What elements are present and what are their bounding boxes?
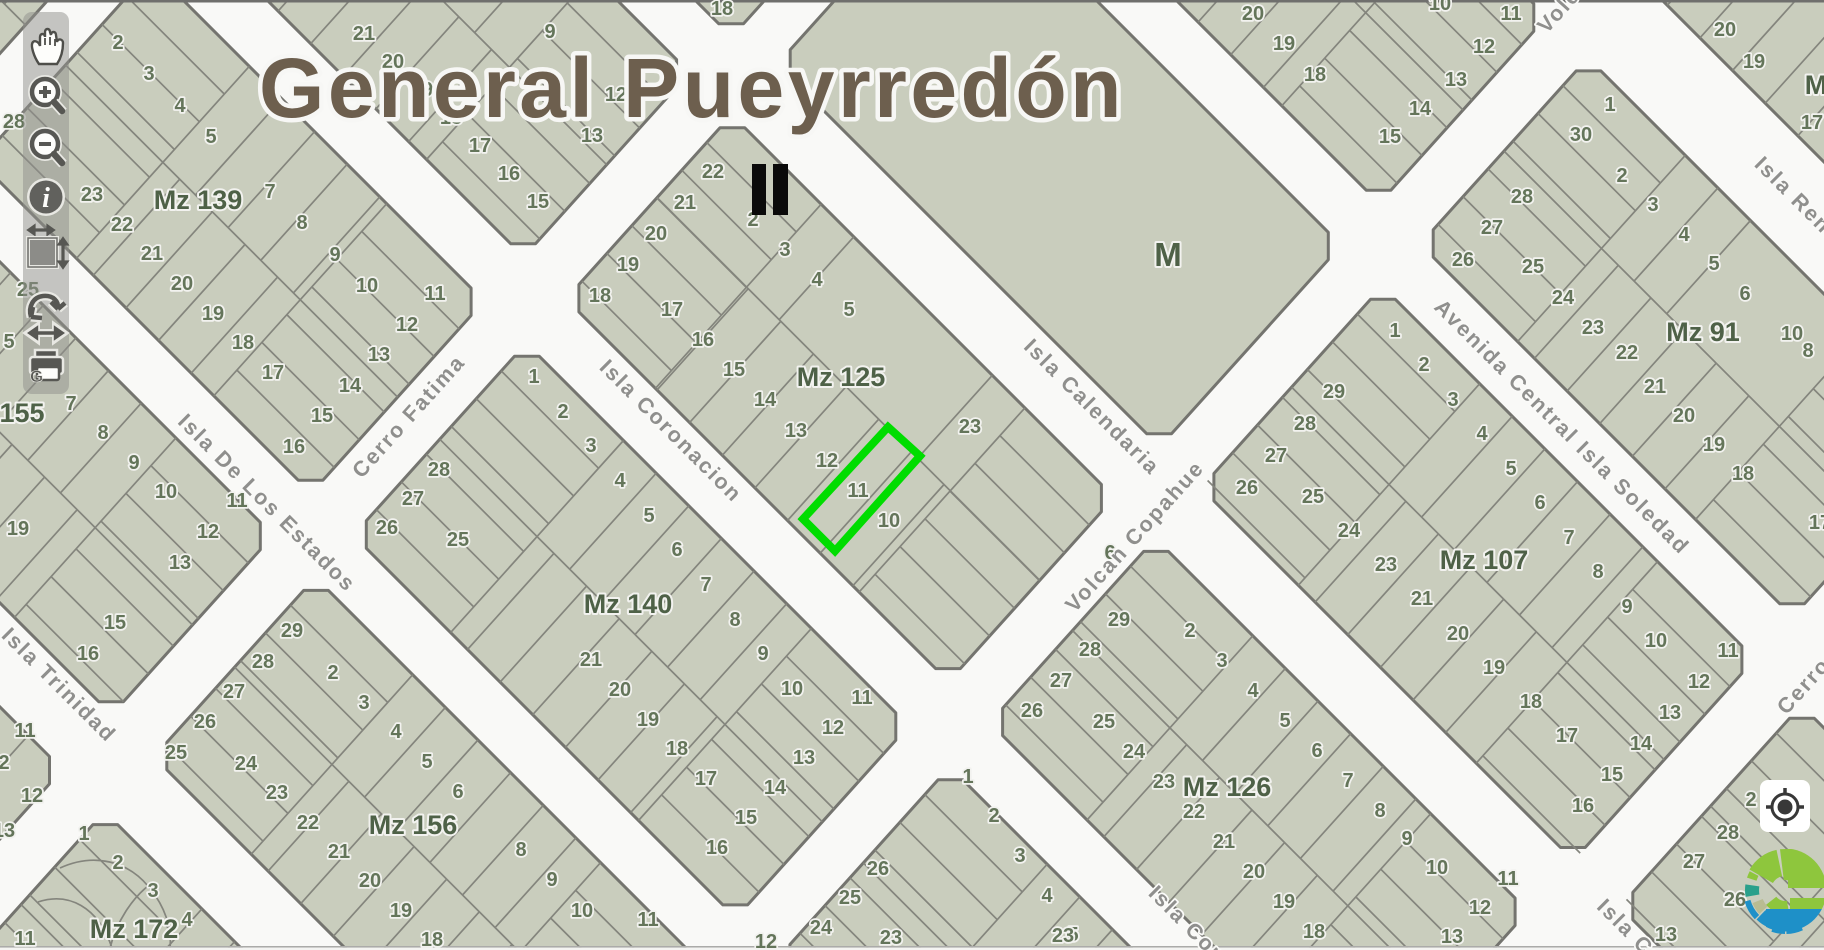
svg-text:2: 2	[1418, 354, 1429, 376]
svg-text:Mz 139: Mz 139	[154, 185, 243, 215]
svg-text:2: 2	[557, 401, 568, 423]
svg-text:13: 13	[1445, 69, 1467, 91]
svg-text:3: 3	[1216, 650, 1227, 672]
svg-text:18: 18	[711, 0, 733, 20]
svg-text:23: 23	[266, 782, 288, 804]
svg-text:10: 10	[571, 900, 593, 922]
svg-text:4: 4	[614, 470, 626, 492]
svg-text:15: 15	[527, 191, 549, 213]
svg-text:9: 9	[128, 452, 139, 474]
svg-text:9: 9	[329, 244, 340, 266]
svg-text:Mz 126: Mz 126	[1183, 772, 1272, 802]
svg-text:10: 10	[1426, 857, 1448, 879]
svg-text:16: 16	[283, 436, 305, 458]
svg-text:17: 17	[1556, 725, 1578, 747]
svg-text:2: 2	[1745, 789, 1756, 811]
svg-text:18: 18	[1732, 463, 1754, 485]
svg-text:17: 17	[1809, 512, 1824, 534]
svg-text:2: 2	[112, 852, 123, 874]
svg-text:10: 10	[1645, 630, 1667, 652]
svg-text:11: 11	[14, 928, 35, 950]
svg-text:28: 28	[1079, 639, 1101, 661]
svg-text:25: 25	[165, 742, 187, 764]
svg-text:13: 13	[1441, 926, 1463, 948]
svg-text:22: 22	[1183, 801, 1205, 823]
svg-text:25: 25	[1302, 486, 1324, 508]
svg-text:26: 26	[1724, 889, 1746, 911]
svg-text:23: 23	[1582, 317, 1604, 339]
svg-text:18: 18	[589, 285, 611, 307]
svg-text:23: 23	[880, 927, 902, 949]
svg-text:17: 17	[262, 362, 284, 384]
svg-text:25: 25	[1093, 711, 1115, 733]
svg-text:28: 28	[252, 651, 274, 673]
svg-text:19: 19	[7, 518, 29, 540]
svg-text:18: 18	[1304, 64, 1326, 86]
svg-text:4: 4	[181, 909, 193, 931]
svg-text:6: 6	[1739, 283, 1750, 305]
svg-text:16: 16	[692, 329, 714, 351]
svg-text:3: 3	[1447, 389, 1458, 411]
svg-text:19: 19	[617, 254, 639, 276]
svg-text:19: 19	[1273, 891, 1295, 913]
svg-text:13: 13	[793, 747, 815, 769]
svg-text:9: 9	[757, 643, 768, 665]
svg-text:4: 4	[1247, 680, 1259, 702]
svg-text:9: 9	[546, 869, 557, 891]
svg-text:19: 19	[1483, 657, 1505, 679]
svg-text:10: 10	[1429, 0, 1451, 15]
svg-text:21: 21	[580, 649, 602, 671]
svg-text:28: 28	[428, 459, 450, 481]
svg-text:12: 12	[755, 931, 777, 950]
svg-text:9: 9	[544, 21, 555, 43]
svg-text:19: 19	[202, 303, 224, 325]
svg-text:13: 13	[785, 420, 807, 442]
svg-text:16: 16	[706, 837, 728, 859]
svg-text:4: 4	[1041, 885, 1053, 907]
svg-text:5: 5	[421, 751, 432, 773]
svg-text:M: M	[1154, 236, 1182, 273]
svg-text:4: 4	[1678, 224, 1690, 246]
svg-text:21: 21	[1644, 376, 1666, 398]
svg-text:Mz 156: Mz 156	[369, 810, 458, 840]
svg-text:4: 4	[390, 721, 402, 743]
svg-text:14: 14	[764, 777, 787, 799]
svg-text:17: 17	[1801, 112, 1823, 134]
svg-text:4: 4	[174, 95, 186, 117]
svg-text:2: 2	[112, 32, 123, 54]
svg-text:2: 2	[988, 805, 999, 827]
svg-text:8: 8	[1374, 800, 1385, 822]
svg-text:10: 10	[781, 678, 803, 700]
svg-text:155: 155	[0, 398, 45, 428]
svg-text:23: 23	[1153, 771, 1175, 793]
svg-text:28: 28	[1511, 186, 1533, 208]
svg-text:5: 5	[1505, 458, 1516, 480]
svg-text:19: 19	[1273, 33, 1295, 55]
svg-text:26: 26	[194, 711, 216, 733]
svg-text:19: 19	[637, 709, 659, 731]
svg-text:17: 17	[469, 135, 491, 157]
svg-text:5: 5	[3, 331, 14, 353]
svg-text:18: 18	[666, 738, 688, 760]
svg-text:19: 19	[390, 900, 412, 922]
svg-text:3: 3	[779, 239, 790, 261]
svg-text:5: 5	[205, 126, 216, 148]
svg-text:Mz 140: Mz 140	[584, 589, 673, 619]
svg-text:5: 5	[843, 299, 854, 321]
svg-text:M: M	[1805, 70, 1824, 100]
svg-text:5: 5	[1279, 710, 1290, 732]
svg-text:22: 22	[111, 214, 133, 236]
svg-text:28: 28	[1717, 822, 1739, 844]
svg-text:6: 6	[1311, 740, 1322, 762]
svg-text:18: 18	[421, 929, 443, 950]
svg-text:7: 7	[1563, 527, 1574, 549]
svg-text:20: 20	[1673, 405, 1695, 427]
svg-text:23: 23	[81, 184, 103, 206]
svg-text:1: 1	[962, 766, 973, 788]
svg-text:18: 18	[232, 332, 254, 354]
svg-text:24: 24	[1123, 741, 1146, 763]
svg-text:9: 9	[1621, 596, 1632, 618]
svg-text:3: 3	[585, 435, 596, 457]
svg-text:24: 24	[235, 753, 258, 775]
svg-text:20: 20	[1242, 3, 1264, 25]
svg-text:10: 10	[356, 275, 378, 297]
svg-text:1: 1	[1604, 94, 1615, 116]
svg-text:12: 12	[396, 314, 418, 336]
svg-text:3: 3	[1647, 194, 1658, 216]
svg-text:1: 1	[528, 366, 539, 388]
svg-text:14: 14	[1409, 98, 1432, 120]
svg-text:11: 11	[1497, 868, 1518, 890]
svg-text:5: 5	[643, 505, 654, 527]
svg-text:Mz 125: Mz 125	[797, 362, 886, 392]
svg-text:11: 11	[424, 283, 445, 305]
svg-text:28: 28	[3, 111, 25, 133]
svg-text:12: 12	[822, 717, 844, 739]
svg-text:13: 13	[1659, 702, 1681, 724]
svg-text:4: 4	[811, 269, 823, 291]
svg-text:20: 20	[359, 870, 381, 892]
svg-text:11: 11	[1717, 640, 1738, 662]
svg-text:i: i	[42, 183, 50, 214]
svg-text:Mz 172: Mz 172	[90, 914, 179, 944]
svg-text:23: 23	[1052, 925, 1074, 947]
svg-text:15: 15	[1601, 764, 1623, 786]
svg-text:27: 27	[1481, 217, 1503, 239]
svg-text:20: 20	[1243, 861, 1265, 883]
svg-text:3: 3	[358, 692, 369, 714]
svg-text:17: 17	[695, 768, 717, 790]
svg-text:29: 29	[1108, 609, 1130, 631]
svg-text:16: 16	[498, 163, 520, 185]
svg-text:10: 10	[155, 481, 177, 503]
svg-text:27: 27	[1050, 670, 1072, 692]
svg-text:2: 2	[1184, 620, 1195, 642]
svg-text:22: 22	[297, 812, 319, 834]
svg-text:16: 16	[1572, 795, 1594, 817]
svg-text:15: 15	[104, 612, 126, 634]
svg-text:2: 2	[1616, 165, 1627, 187]
svg-text:6: 6	[1534, 492, 1545, 514]
svg-text:26: 26	[1021, 700, 1043, 722]
svg-text:12: 12	[816, 450, 838, 472]
svg-text:8: 8	[1592, 561, 1603, 583]
svg-text:7: 7	[700, 574, 711, 596]
svg-text:Mz 91: Mz 91	[1666, 317, 1740, 347]
svg-text:28: 28	[1294, 413, 1316, 435]
svg-text:12: 12	[197, 521, 219, 543]
svg-text:16: 16	[77, 643, 99, 665]
svg-text:15: 15	[311, 405, 333, 427]
svg-text:24: 24	[1552, 287, 1575, 309]
svg-text:20: 20	[645, 223, 667, 245]
svg-text:20: 20	[1447, 623, 1469, 645]
svg-text:25: 25	[447, 529, 469, 551]
svg-text:19: 19	[1743, 51, 1765, 73]
svg-text:21: 21	[328, 841, 350, 863]
svg-text:17: 17	[661, 299, 683, 321]
svg-text:27: 27	[402, 488, 424, 510]
svg-text:25: 25	[1522, 256, 1544, 278]
svg-text:15: 15	[735, 807, 757, 829]
svg-text:9: 9	[1401, 828, 1412, 850]
svg-text:27: 27	[223, 681, 245, 703]
svg-text:8: 8	[1802, 340, 1813, 362]
svg-text:18: 18	[1520, 691, 1542, 713]
svg-text:2: 2	[0, 752, 10, 774]
svg-text:8: 8	[515, 839, 526, 861]
svg-text:6: 6	[671, 539, 682, 561]
svg-text:General Pueyrredón: General Pueyrredón	[259, 41, 1125, 135]
svg-text:Mz 107: Mz 107	[1440, 545, 1529, 575]
svg-text:13: 13	[169, 552, 191, 574]
svg-text:5: 5	[1708, 253, 1719, 275]
svg-text:13: 13	[368, 344, 390, 366]
svg-text:10: 10	[1781, 323, 1803, 345]
svg-text:22: 22	[1616, 342, 1638, 364]
svg-text:25: 25	[839, 887, 861, 909]
svg-text:11: 11	[847, 480, 868, 502]
svg-text:7: 7	[264, 181, 275, 203]
svg-text:1: 1	[78, 823, 89, 845]
svg-text:8: 8	[296, 212, 307, 234]
svg-text:29: 29	[281, 620, 303, 642]
svg-text:21: 21	[1411, 588, 1433, 610]
svg-text:20: 20	[1714, 19, 1736, 41]
svg-text:1: 1	[1389, 320, 1400, 342]
svg-text:22: 22	[702, 161, 724, 183]
svg-text:12: 12	[1473, 36, 1495, 58]
svg-text:30: 30	[1570, 124, 1592, 146]
svg-text:3: 3	[147, 880, 158, 902]
svg-text:8: 8	[729, 609, 740, 631]
svg-text:27: 27	[1265, 445, 1287, 467]
svg-text:2: 2	[327, 662, 338, 684]
svg-text:26: 26	[867, 858, 889, 880]
svg-text:23: 23	[1375, 554, 1397, 576]
svg-text:27: 27	[1683, 851, 1705, 873]
svg-text:11: 11	[851, 687, 872, 709]
svg-text:15: 15	[1379, 126, 1401, 148]
svg-text:11: 11	[1500, 3, 1521, 25]
svg-text:12: 12	[21, 785, 43, 807]
svg-text:23: 23	[959, 416, 981, 438]
svg-text:21: 21	[674, 192, 696, 214]
svg-text:12: 12	[1469, 897, 1491, 919]
svg-text:24: 24	[1338, 520, 1361, 542]
svg-text:13: 13	[0, 820, 15, 842]
svg-text:20: 20	[171, 273, 193, 295]
svg-text:G: G	[30, 367, 43, 386]
svg-text:21: 21	[141, 243, 163, 265]
svg-text:6: 6	[452, 781, 463, 803]
svg-text:7: 7	[1342, 770, 1353, 792]
svg-text:11: 11	[637, 909, 658, 931]
svg-text:4: 4	[1476, 423, 1488, 445]
svg-text:20: 20	[609, 679, 631, 701]
svg-text:3: 3	[1014, 845, 1025, 867]
svg-text:19: 19	[1703, 434, 1725, 456]
svg-text:8: 8	[97, 422, 108, 444]
svg-text:24: 24	[810, 917, 833, 939]
svg-text:26: 26	[376, 517, 398, 539]
svg-text:18: 18	[1303, 921, 1325, 943]
svg-text:12: 12	[1688, 671, 1710, 693]
svg-text:15: 15	[723, 359, 745, 381]
svg-text:7: 7	[65, 393, 76, 415]
svg-text:26: 26	[1236, 477, 1258, 499]
svg-text:11: 11	[14, 720, 35, 742]
svg-text:3: 3	[143, 63, 154, 85]
svg-text:21: 21	[1213, 831, 1235, 853]
svg-text:14: 14	[339, 375, 362, 397]
svg-text:26: 26	[1452, 249, 1474, 271]
svg-text:14: 14	[754, 389, 777, 411]
svg-text:14: 14	[1630, 733, 1653, 755]
svg-text:29: 29	[1323, 381, 1345, 403]
svg-text:10: 10	[878, 510, 900, 532]
